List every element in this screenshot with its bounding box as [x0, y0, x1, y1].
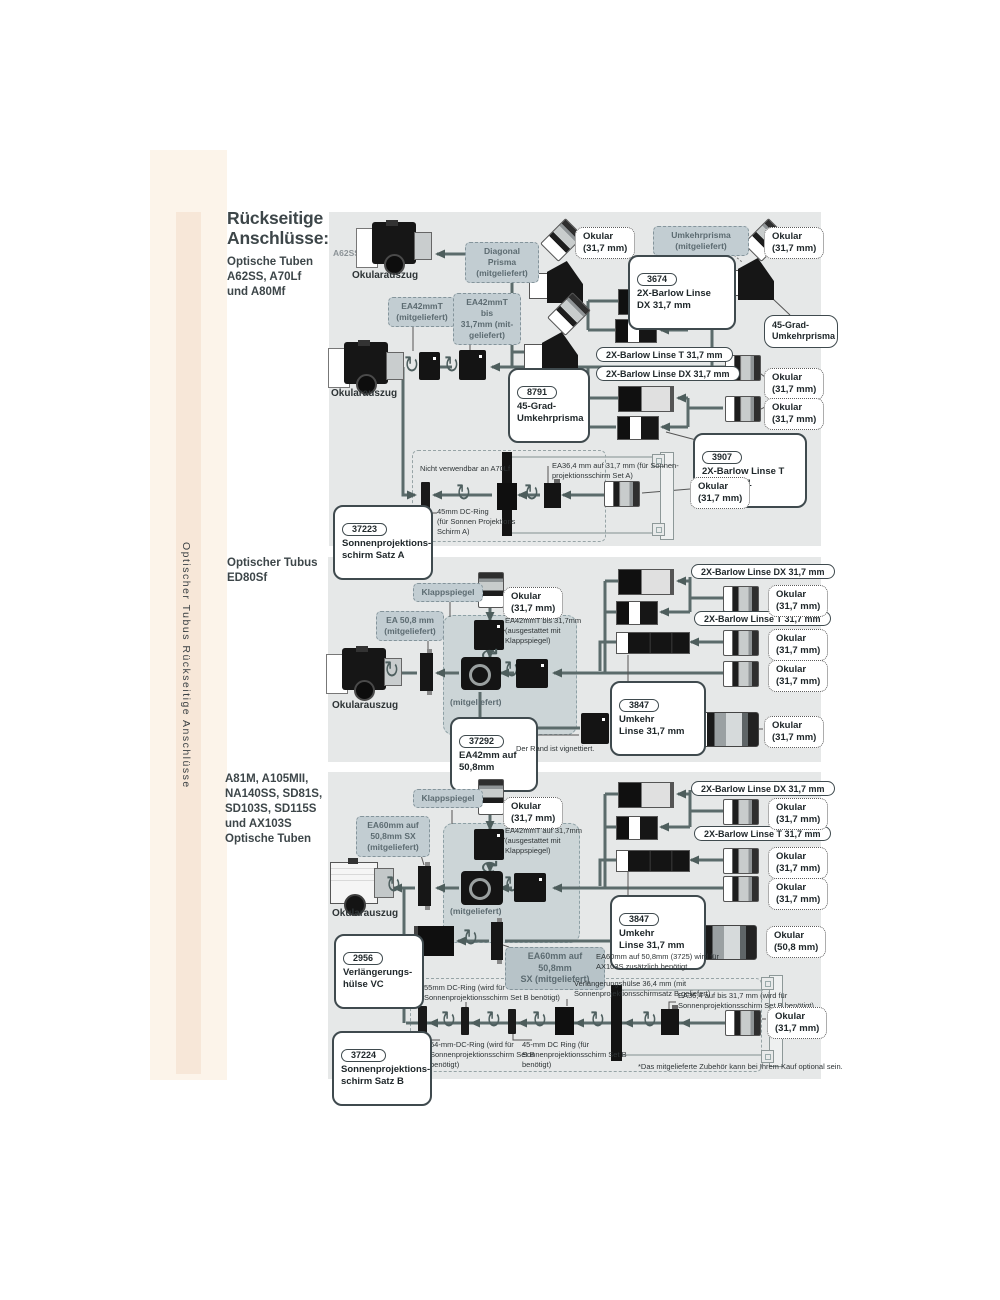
rotate-icon: ↻	[642, 1008, 657, 1032]
note-dc55: 55mm DC-Ring (wird für Sonnenprojektions…	[424, 983, 560, 1003]
adapter-ea42-flip	[474, 620, 504, 650]
adapter-ea60sx-part	[491, 922, 503, 960]
barlow-t-part	[617, 416, 659, 440]
adapter-ea42-508	[581, 713, 609, 744]
okular-label: Okular (31,7 mm)	[503, 587, 563, 619]
rotate-icon: ↻	[386, 873, 401, 897]
okularauszug-label-mid: Okularauszug	[332, 700, 398, 711]
label-45grad-umkehrprisma: 45-Grad- Umkehrprisma	[764, 315, 838, 348]
rotate-icon: ↻	[463, 926, 478, 950]
note-mitgeliefert-mid: (mitgeliefert)	[450, 697, 501, 708]
okular-label: Okular (50,8 mm)	[766, 926, 826, 958]
rotate-icon: ↻	[524, 481, 539, 505]
eyepiece-icon	[723, 876, 759, 902]
eyepiece-icon	[725, 1010, 761, 1036]
part-number: 8791	[517, 386, 557, 399]
dc-ring-55-part	[461, 1007, 469, 1035]
adapter-right-part	[516, 659, 548, 688]
note-nicht-verwendbar: Nicht verwendbar an A70Lf	[420, 464, 510, 474]
label-ea42mmt: EA42mmT (mitgeliefert)	[388, 297, 456, 327]
okular-label: Okular (31,7 mm)	[764, 716, 824, 748]
adapter-ea60-part	[418, 866, 431, 906]
rotate-icon: ↻	[444, 353, 459, 377]
manual-page: Optischer Tubus Rückseitige Anschlüsse R…	[0, 0, 1000, 1300]
part-number: 3847	[619, 913, 659, 926]
part-box-37223: 37223 Sonnenprojektions- schirm Satz A	[333, 505, 433, 580]
note-dc45-a: 45mm DC-Ring (für Sonnen Projektions Sch…	[437, 507, 515, 536]
part-number: 3847	[619, 699, 659, 712]
umkehr-linse-part	[616, 632, 690, 654]
huelse-364-part	[555, 1007, 574, 1035]
note-ea60-3725: EA60mm auf 50,8mm (3725) wird für AX103S…	[596, 952, 719, 972]
part-box-37224: 37224 Sonnenprojektions- schirm Satz B	[332, 1031, 432, 1106]
part-number: 2956	[343, 952, 383, 965]
eyepiece-icon	[723, 661, 759, 687]
rotate-icon: ↻	[486, 1008, 501, 1032]
okular-label: Okular (31,7 mm)	[768, 585, 828, 617]
okular-label: Okular (31,7 mm)	[764, 398, 824, 430]
note-vignette: Der Rand ist vignettiert.	[516, 744, 594, 754]
flip-mirror-part	[461, 657, 501, 690]
okular-label: Okular (31,7 mm)	[768, 847, 828, 879]
note-ea364-a: EA36,4 mm auf 31,7 mm (für Sonnen- proje…	[552, 461, 679, 481]
label-klappspiegel: Klappspiegel	[413, 583, 483, 602]
okular-label: Okular (31,7 mm)	[768, 878, 828, 910]
adapter-ea42-flip	[474, 829, 504, 860]
label-ea42mmt-bis: EA42mmT bis 31,7mm (mit- geliefert)	[453, 293, 521, 345]
adapter-ea364	[544, 483, 561, 508]
rotate-icon: ↻	[404, 353, 419, 377]
okular-label: Okular (31,7 mm)	[768, 798, 828, 830]
focuser-a62ss	[356, 220, 436, 272]
pill-barlow-dx: 2X-Barlow Linse DX 31,7 mm	[691, 564, 835, 579]
part-text: Sonnenprojektions- schirm Satz A	[342, 538, 424, 562]
note-mitgeliefert-bot: (mitgeliefert)	[450, 906, 501, 917]
part-number: 37224	[341, 1049, 386, 1062]
dc-ring-45-part	[508, 1009, 516, 1034]
adapter-ea42mmt-bis	[459, 350, 486, 380]
label-diagonal-prisma: Diagonal Prisma (mitgeliefert)	[465, 242, 539, 283]
flip-mirror-part	[461, 871, 503, 905]
barlow-dx-part	[618, 782, 674, 808]
eyepiece-icon	[723, 799, 759, 825]
note-ea42-mid: EA42mmT bis 31,7mm (ausgestattet mit Kla…	[505, 616, 581, 645]
adapter-right-part	[514, 873, 546, 902]
note-ea42-bot: EA42mmT auf 31,7mm (ausgestattet mit Kla…	[505, 826, 582, 855]
okular-label: Okular (31,7 mm)	[503, 797, 563, 829]
adapter-ea364	[661, 1009, 679, 1035]
adapter-ea42mmt	[419, 352, 440, 380]
rotate-icon: ↻	[590, 1008, 605, 1032]
okular-label: Okular (31,7 mm)	[768, 629, 828, 661]
pill-barlow-dx: 2X-Barlow Linse DX 31,7 mm	[691, 781, 835, 796]
label-ea508: EA 50,8 mm (mitgeliefert)	[376, 611, 444, 641]
part-box-2956: 2956 Verlängerungs- hülse VC	[334, 934, 424, 1009]
umkehr-linse-part	[616, 850, 690, 872]
focuser-main-top	[328, 340, 408, 392]
eyepiece-icon	[723, 848, 759, 874]
okular-label: Okular (31,7 mm)	[764, 227, 824, 259]
rotate-icon: ↻	[441, 1008, 456, 1032]
part-text: Umkehr Linse 31,7 mm	[619, 714, 697, 738]
note-dc64: 64-mm-DC-Ring (wird für Sonnenprojektion…	[430, 1040, 535, 1069]
barlow-t-part	[616, 816, 658, 840]
eyepiece-icon	[723, 630, 759, 656]
eyepiece-icon	[723, 586, 759, 612]
part-text: Verlängerungs- hülse VC	[343, 967, 415, 991]
part-text: Sonnenprojektions- schirm Satz B	[341, 1064, 423, 1088]
part-box-8791: 8791 45-Grad- Umkehrprisma	[508, 368, 590, 443]
part-box-3847: 3847 Umkehr Linse 31,7 mm	[610, 681, 706, 756]
barlow-dx-part	[618, 569, 674, 595]
label-umkehrprisma: Umkehrprisma (mitgeliefert)	[653, 226, 749, 256]
label-klappspiegel: Klappspiegel	[413, 789, 483, 808]
part-text: 2X-Barlow Linse DX 31,7 mm	[637, 288, 727, 312]
footnote: *Das mitgelieferte Zubehör kann bei Ihre…	[638, 1062, 843, 1072]
barlow-t-part	[616, 601, 658, 625]
okularauszug-label-a62ss: Okularauszug	[352, 270, 418, 281]
part-number: 37292	[459, 735, 504, 748]
part-text: Umkehr Linse 31,7 mm	[619, 928, 697, 952]
part-number: 3674	[637, 273, 677, 286]
rotate-icon: ↻	[532, 1008, 547, 1032]
okular-label: Okular (31,7 mm)	[690, 477, 750, 509]
okular-label: Okular (31,7 mm)	[767, 1007, 827, 1039]
okularauszug-label-top: Okularauszug	[331, 388, 397, 399]
okularauszug-label-bot: Okularauszug	[332, 908, 398, 919]
rotate-icon: ↻	[456, 481, 471, 505]
part-number: 37223	[342, 523, 387, 536]
okular-label: Okular (31,7 mm)	[575, 227, 635, 259]
rotate-icon: ↻	[384, 658, 399, 682]
label-ea60-sx: EA60mm auf 50,8mm SX (mitgeliefert)	[356, 816, 430, 857]
barlow-dx-part	[618, 386, 674, 412]
okular-label: Okular (31,7 mm)	[764, 368, 824, 400]
part-number: 3907	[702, 451, 742, 464]
part-text: 45-Grad- Umkehrprisma	[517, 401, 581, 425]
part-box-3674: 3674 2X-Barlow Linse DX 31,7 mm	[628, 255, 736, 330]
pill-barlow-dx: 2X-Barlow Linse DX 31,7 mm	[596, 366, 740, 381]
eyepiece-icon	[725, 396, 761, 422]
adapter-ea508-part	[420, 653, 433, 691]
pill-barlow-t: 2X-Barlow Linse T 31,7 mm	[596, 347, 733, 362]
okular-label: Okular (31,7 mm)	[768, 660, 828, 692]
eyepiece-icon	[604, 481, 640, 507]
screen-hub-part	[497, 483, 517, 510]
note-dc45-b: 45-mm DC Ring (für Sonnenprojektionsschi…	[522, 1040, 627, 1069]
